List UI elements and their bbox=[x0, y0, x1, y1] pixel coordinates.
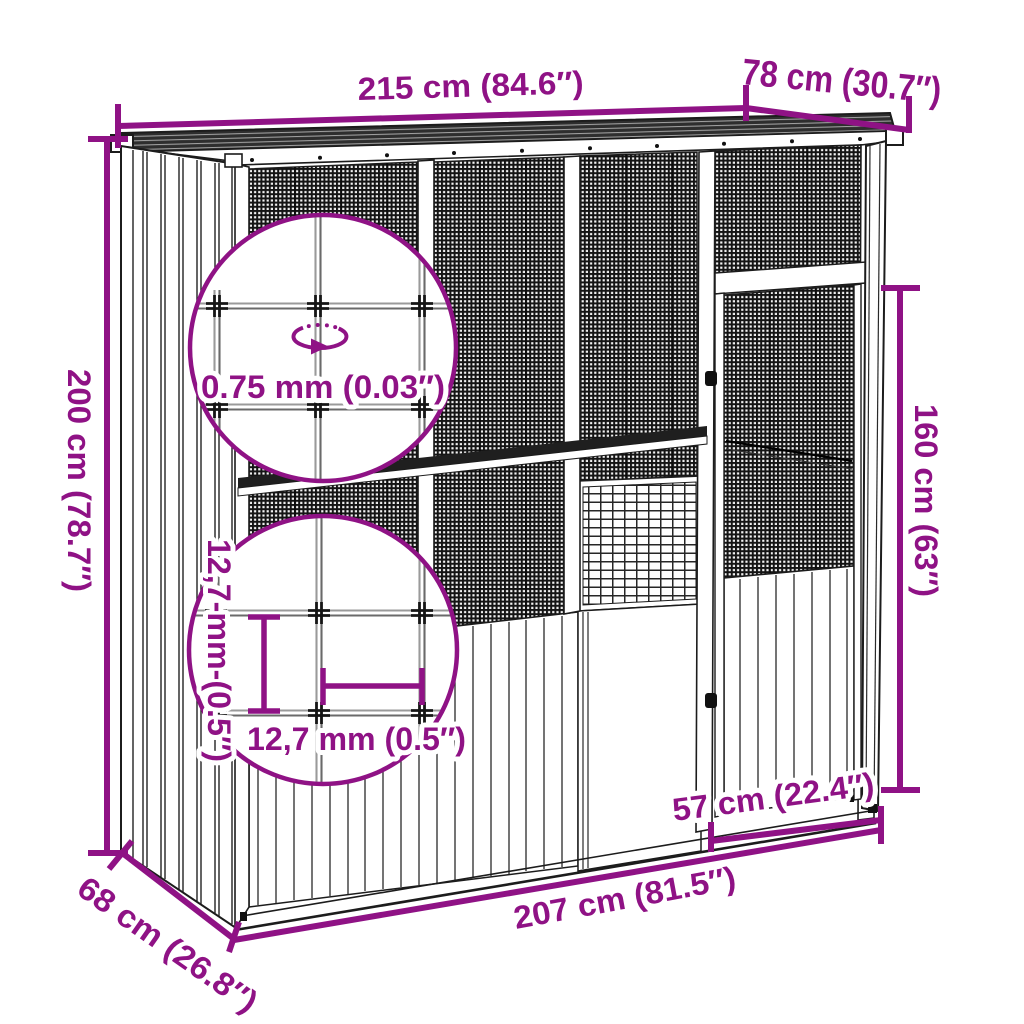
svg-text:160 cm (63″): 160 cm (63″) bbox=[908, 404, 944, 597]
svg-text:215 cm (84.6″): 215 cm (84.6″) bbox=[357, 64, 584, 107]
svg-text:200 cm (78.7″): 200 cm (78.7″) bbox=[61, 369, 97, 592]
svg-text:12,7 mm (0.5″): 12,7 mm (0.5″) bbox=[247, 721, 466, 757]
svg-text:0.75 mm (0.03″): 0.75 mm (0.03″) bbox=[201, 369, 445, 405]
svg-text:12,7-mm-(0.5″): 12,7-mm-(0.5″) bbox=[201, 539, 237, 762]
